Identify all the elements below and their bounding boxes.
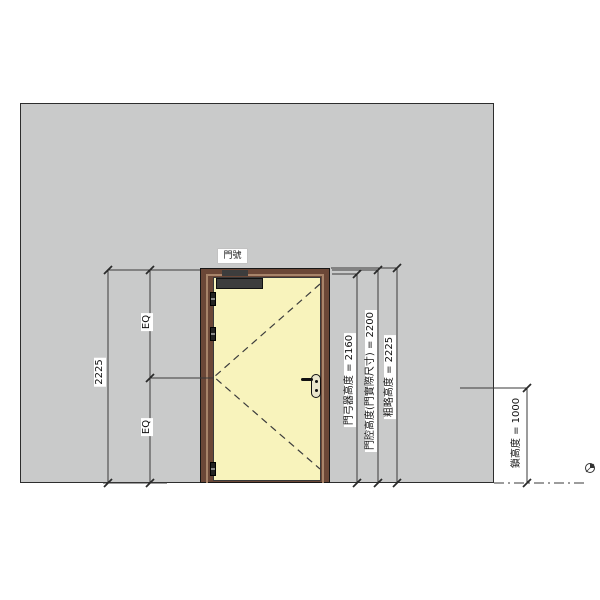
door-swing-dashed-lines <box>214 284 320 469</box>
dimension-label-eq-upper[interactable]: EQ <box>141 313 153 331</box>
dimension-lines-svg <box>0 0 600 600</box>
dimension-label-door-leaf-height[interactable]: 門腔高度(門實際尺寸) = 2200 <box>365 310 377 452</box>
drawing-canvas: 門號 2225 EQ EQ 門弓器高度 = 2160 門腔高度(門實際尺寸) =… <box>0 0 600 600</box>
dimension-label-lock-height[interactable]: 鎖高度 = 1000 <box>511 396 523 470</box>
dimension-label-eq-lower[interactable]: EQ <box>141 418 153 436</box>
level-head-icon <box>586 464 595 473</box>
dimension-label-door-closer-height[interactable]: 門弓器高度 = 2160 <box>344 333 356 427</box>
door-tag[interactable]: 門號 <box>218 249 247 263</box>
dimension-label-rough-height[interactable]: 粗略高度 = 2225 <box>384 335 396 419</box>
dimension-label-overall-height[interactable]: 2225 <box>94 357 106 386</box>
